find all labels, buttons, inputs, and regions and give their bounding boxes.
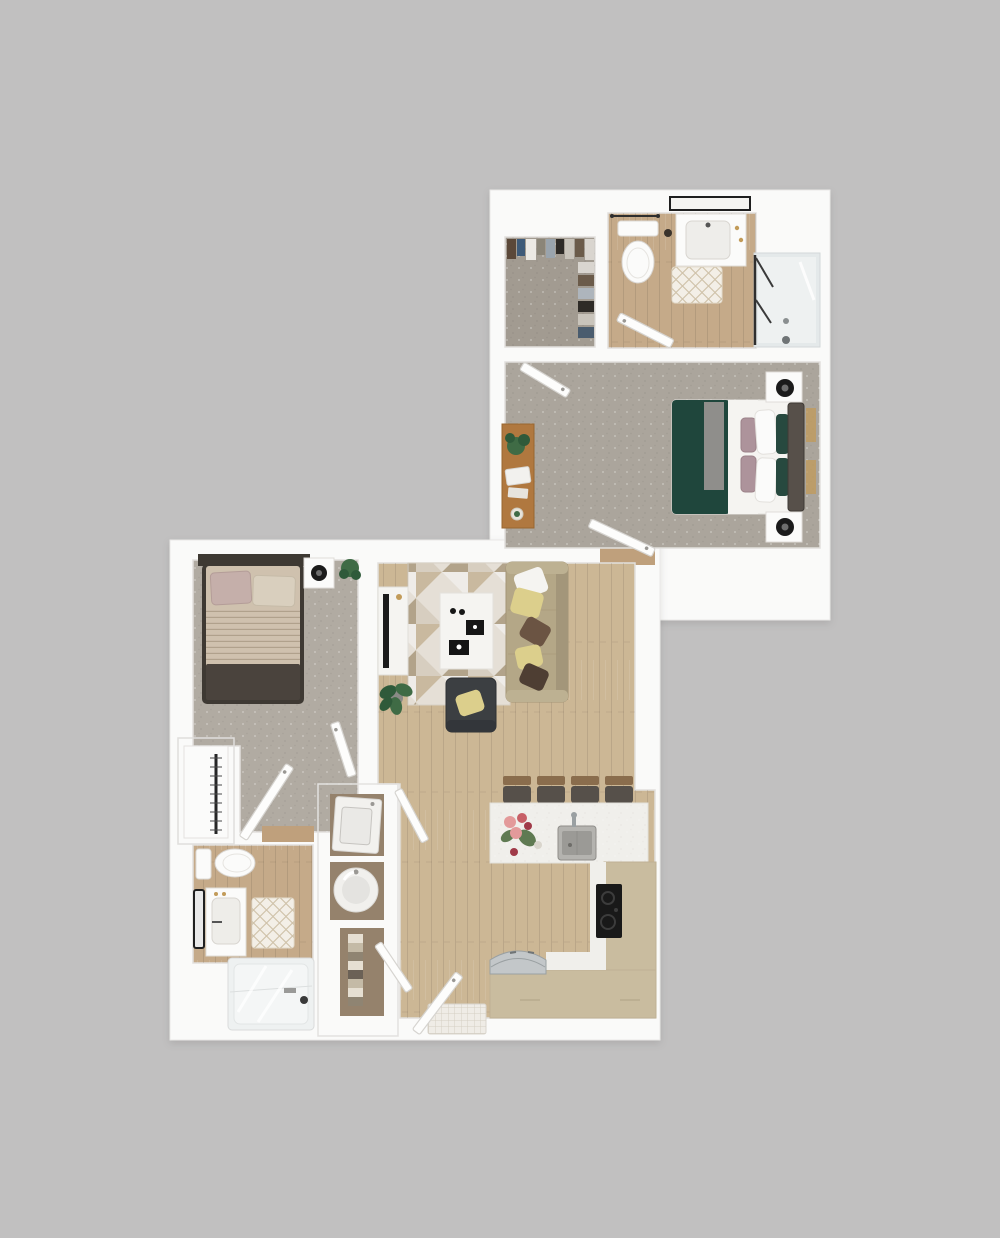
green-pillow-2 (776, 458, 789, 496)
vanity-sink (206, 888, 246, 956)
tv-console (378, 587, 408, 675)
sofa-arm-bottom (506, 690, 568, 702)
bar-stool-4 (605, 776, 633, 803)
tub-faucet (284, 988, 296, 993)
lower-unit (178, 554, 656, 1036)
bar-stool-2 (537, 776, 565, 803)
bath-mat (252, 898, 294, 948)
washer-niche (330, 862, 384, 920)
door-threshold (262, 826, 314, 842)
accent-pillow-2 (741, 456, 756, 492)
glass-shower (754, 253, 820, 347)
headboard (788, 403, 804, 511)
linen-niche (340, 928, 384, 1016)
faucet (706, 223, 711, 228)
tub-shower (228, 958, 314, 1030)
tub-drain (300, 996, 308, 1004)
linen-shelves (348, 934, 363, 1006)
floor-plan-image (0, 0, 1000, 1238)
toilet (196, 849, 255, 879)
glass (534, 841, 542, 849)
shower-drain (782, 336, 790, 344)
island (490, 803, 648, 863)
sofa (506, 562, 568, 702)
foot-blanket (206, 664, 300, 700)
queen-bed-beige (198, 554, 310, 704)
cooktop (596, 884, 622, 938)
bar-stool-1 (503, 776, 531, 803)
dryer-niche (330, 794, 384, 856)
floor-accessory (664, 229, 672, 237)
vanity-mirror (194, 890, 204, 948)
sofa-back (556, 564, 568, 700)
washer-lid (342, 876, 370, 904)
notebook (508, 487, 529, 499)
vanity-mirror (670, 197, 750, 210)
bath-mat (672, 267, 722, 303)
laptop (505, 466, 531, 485)
queen-bed-green (672, 400, 816, 514)
vanity-sink (676, 214, 746, 266)
pillow-2 (252, 575, 295, 606)
bench-strip-1 (806, 408, 816, 442)
desk (502, 424, 534, 528)
bench-strip-2 (806, 460, 816, 494)
faucet (572, 817, 576, 827)
armchair-back (446, 720, 496, 732)
drain (568, 843, 572, 847)
nightstand (304, 558, 334, 588)
bottom-cabinets (490, 970, 656, 1018)
tv (383, 594, 389, 668)
pillow-2 (755, 458, 777, 503)
upper-bedroom (502, 362, 820, 548)
coffee-table (440, 593, 493, 669)
nightstand-bottom (766, 512, 802, 542)
gray-throw (704, 402, 724, 490)
walk-in-closet (505, 237, 595, 347)
nightstand-top (766, 372, 802, 402)
pillow-1 (754, 409, 777, 454)
decor-knob (396, 594, 402, 600)
accent-pillow-1 (741, 418, 756, 452)
floor-plan-stage (0, 0, 1000, 1238)
pillow-1 (210, 571, 252, 605)
bar-stool-3 (571, 776, 599, 803)
reach-in-closet (178, 738, 234, 844)
striped-duvet (206, 606, 300, 664)
dryer-door (340, 807, 372, 845)
shower-head (783, 318, 789, 324)
armchair (446, 678, 496, 732)
green-pillow-1 (776, 414, 789, 454)
